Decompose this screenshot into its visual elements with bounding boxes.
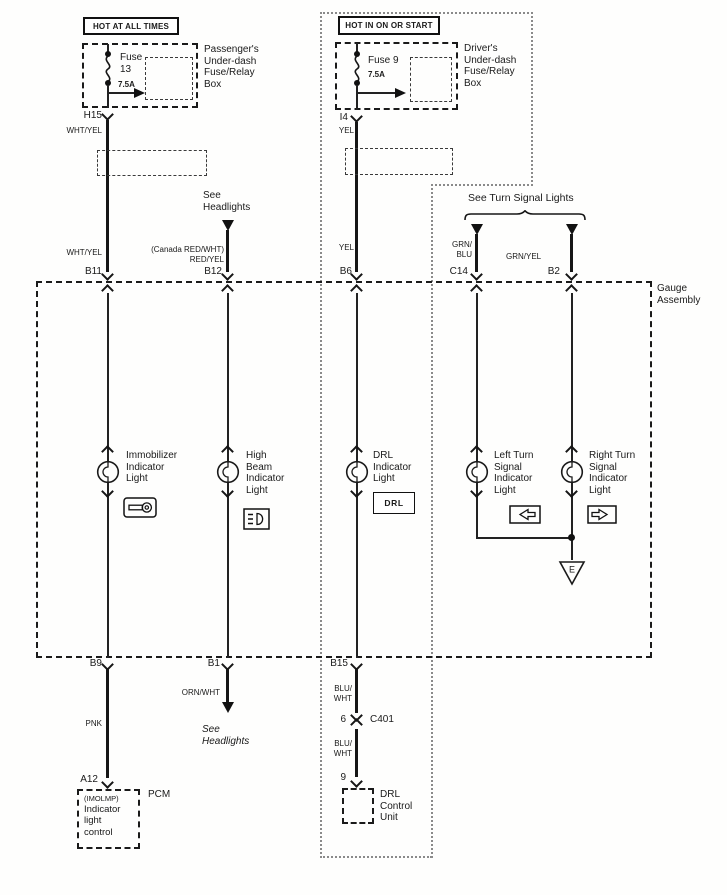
wire [107, 85, 109, 108]
connector-fork-icon [101, 268, 114, 281]
wire-color-label: BLU/ WHT [320, 684, 352, 704]
pcm-function-label: Indicator light control [84, 804, 136, 838]
wiring-diagram: HOT AT ALL TIMES HOT IN ON OR START Fuse… [0, 0, 727, 895]
pin-b6: B6 [324, 266, 352, 278]
passenger-fuse-box-relay [145, 57, 193, 100]
fuse-feed-arrow-icon [134, 88, 145, 98]
wire-color-label: (Canada RED/WHT) RED/YEL [128, 245, 224, 265]
connector-c401: C401 [370, 714, 394, 726]
fuse-9-label: Fuse 9 [368, 55, 399, 67]
pin-b9: B9 [70, 658, 102, 670]
pin-a12: A12 [66, 774, 98, 786]
connector-fork-icon [350, 110, 363, 123]
ground-icon: E [558, 560, 586, 586]
see-turn-signal-lights-note: See Turn Signal Lights [468, 192, 574, 204]
high-beam-icon [243, 508, 270, 530]
drl-section-border-step [431, 184, 533, 186]
pin-h15: H15 [74, 110, 102, 122]
key-icon [123, 497, 157, 518]
left-turn-indicator-label: Left Turn Signal Indicator Light [494, 450, 533, 496]
imolmp-label: (IMOLMP) [84, 794, 136, 804]
drl-section-border-right-upper [531, 12, 533, 186]
wire [356, 85, 358, 110]
pin-b2: B2 [534, 266, 560, 278]
connector-fork-icon [350, 775, 363, 788]
pin-6: 6 [330, 714, 346, 726]
connector-fork-icon [101, 776, 114, 789]
pin-c14: C14 [436, 266, 468, 278]
right-turn-indicator-label: Right Turn Signal Indicator Light [589, 450, 635, 496]
wire-blu-wht [355, 668, 358, 713]
high-beam-indicator-label: High Beam Indicator Light [246, 450, 284, 496]
left-arrow-icon [509, 505, 541, 524]
bulb-icon [464, 459, 490, 485]
ground-label: E [569, 565, 575, 575]
wire-color-label: ORN/WHT [164, 688, 220, 698]
fuse-13-rating: 7.5A [118, 80, 135, 90]
wire-color-label: GRN/YEL [506, 252, 541, 262]
wire-color-label: WHT/YEL [62, 248, 102, 258]
brace-icon [463, 210, 587, 221]
fuse-element-icon [101, 56, 115, 82]
fuse-feed-arrow-icon [395, 88, 406, 98]
drl-section-border-top [320, 12, 533, 14]
wire-color-label: PNK [74, 719, 102, 729]
connector-fork-icon [565, 268, 578, 281]
drl-control-unit-box [342, 788, 374, 824]
connector-fork-icon [221, 268, 234, 281]
wire-blu-wht [355, 729, 358, 777]
connector-fork-icon [470, 268, 483, 281]
pcm-tag: PCM [148, 789, 170, 801]
junction-dot [568, 534, 575, 541]
pin-9: 9 [330, 772, 346, 784]
pin-b15: B15 [314, 658, 348, 670]
wire-grn-blu [475, 234, 478, 272]
wire [476, 537, 572, 539]
hot-in-on-or-start-box: HOT IN ON OR START [338, 16, 440, 35]
wire-grn-yel [570, 234, 573, 272]
pcm-box: (IMOLMP) Indicator light control [77, 789, 140, 849]
wire-orn-wht [226, 668, 229, 704]
pin-b1: B1 [192, 658, 220, 670]
inline-connector-box [97, 150, 207, 176]
connector-fork-icon [101, 108, 114, 121]
driver-fuse-box-label: Driver's Under-dash Fuse/Relay Box [464, 43, 516, 89]
driver-fuse-box-relay [410, 57, 452, 102]
drl-indicator-label: DRL Indicator Light [373, 450, 411, 485]
wire [476, 293, 478, 538]
wire-color-label: BLU/ WHT [320, 739, 352, 759]
gauge-assembly-label: Gauge Assembly [657, 283, 700, 306]
bulb-icon [559, 459, 585, 485]
wire [108, 92, 136, 94]
wire-color-label: YEL [332, 126, 354, 136]
wire-red-yel [226, 230, 229, 272]
fuse-13-label: Fuse 13 [120, 52, 142, 75]
fuse-element-icon [350, 56, 364, 82]
wire [357, 92, 397, 94]
wire-color-label: GRN/ BLU [440, 240, 472, 260]
passenger-fuse-box-label: Passenger's Under-dash Fuse/Relay Box [204, 44, 259, 90]
pin-b11: B11 [70, 266, 102, 278]
wire-color-label: WHT/YEL [62, 126, 102, 136]
wire-color-label: YEL [328, 243, 354, 253]
feed-arrow-icon [222, 702, 234, 713]
fuse-9-rating: 7.5A [368, 70, 385, 80]
see-headlights-note-top: See Headlights [203, 190, 250, 213]
drl-control-unit-label: DRL Control Unit [380, 789, 412, 824]
pin-b12: B12 [190, 266, 222, 278]
connector-fork-icon [350, 268, 363, 281]
drl-section-border-bottom [320, 856, 432, 858]
hot-at-all-times-box: HOT AT ALL TIMES [83, 17, 179, 35]
right-arrow-icon [587, 505, 617, 524]
wire-yel [355, 122, 358, 272]
pin-i4: I4 [330, 112, 348, 124]
see-headlights-note-bottom: See Headlights [202, 724, 249, 747]
bulb-icon [215, 459, 241, 485]
wire-wht-yel [106, 120, 109, 272]
bulb-icon [344, 459, 370, 485]
wire-pnk [106, 668, 109, 778]
wire [571, 293, 573, 560]
immobilizer-indicator-label: Immobilizer Indicator Light [126, 450, 177, 485]
drl-badge: DRL [373, 492, 415, 514]
inline-connector-box [345, 148, 453, 175]
bulb-icon [95, 459, 121, 485]
